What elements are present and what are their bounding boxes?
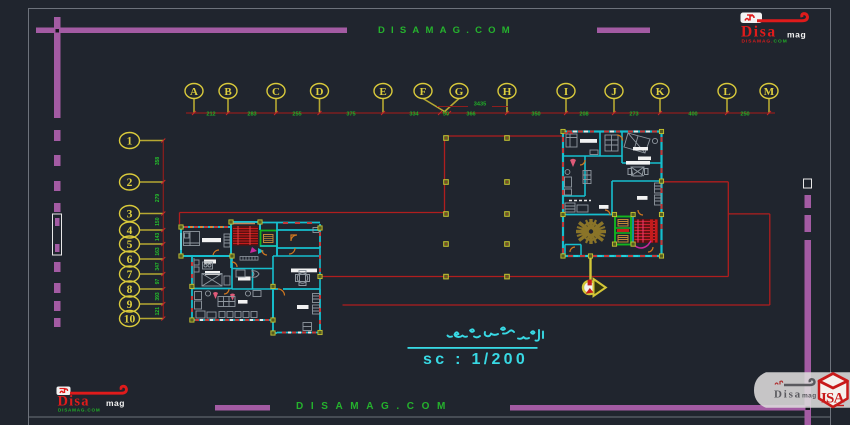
svg-text:400: 400 <box>688 112 697 118</box>
svg-text:A: A <box>190 86 198 98</box>
svg-text:DISAMAG.COM: DISAMAG.COM <box>378 25 516 36</box>
svg-text:8: 8 <box>127 284 133 296</box>
svg-text:150: 150 <box>155 217 161 226</box>
svg-text:B: B <box>224 86 232 98</box>
svg-text:mag: mag <box>106 398 125 408</box>
svg-text:J: J <box>611 86 617 98</box>
svg-text:I: I <box>564 86 568 98</box>
svg-text:358: 358 <box>155 157 161 166</box>
svg-text:375: 375 <box>346 112 355 118</box>
svg-text:208: 208 <box>579 112 588 118</box>
svg-text:250: 250 <box>740 112 749 118</box>
svg-text:347: 347 <box>155 262 161 271</box>
svg-text:50: 50 <box>443 112 449 118</box>
svg-text:D: D <box>316 86 324 98</box>
svg-text:279: 279 <box>155 194 161 203</box>
svg-text:283: 283 <box>247 112 256 118</box>
svg-text:DISAMAG.COM: DISAMAG.COM <box>742 39 788 45</box>
svg-text:163: 163 <box>155 247 161 256</box>
svg-text:F: F <box>420 86 427 98</box>
svg-text:Disa: Disa <box>774 389 802 401</box>
svg-text:1: 1 <box>127 136 133 148</box>
svg-text:7: 7 <box>127 269 133 281</box>
svg-text:366: 366 <box>466 112 475 118</box>
svg-text:mag: mag <box>802 393 817 400</box>
svg-text:sc : 1/200: sc : 1/200 <box>423 351 528 368</box>
svg-text:6: 6 <box>127 254 133 266</box>
svg-text:3435: 3435 <box>474 102 486 108</box>
svg-text:M: M <box>764 86 775 98</box>
svg-text:G: G <box>455 86 464 98</box>
svg-text:3: 3 <box>127 209 133 221</box>
svg-text:K: K <box>656 86 665 98</box>
svg-text:212: 212 <box>206 112 215 118</box>
svg-text:97: 97 <box>155 279 161 285</box>
svg-text:DISAMAG.COM: DISAMAG.COM <box>296 401 453 412</box>
svg-text:143: 143 <box>155 233 161 242</box>
svg-text:334: 334 <box>409 112 419 118</box>
svg-text:DISAMAG.COM: DISAMAG.COM <box>58 408 101 413</box>
svg-text:273: 273 <box>629 112 638 118</box>
svg-text:ISA: ISA <box>821 391 845 407</box>
svg-text:350: 350 <box>531 112 540 118</box>
svg-text:Disa: Disa <box>741 24 777 41</box>
svg-text:C: C <box>272 86 280 98</box>
svg-text:L: L <box>723 86 730 98</box>
svg-text:5: 5 <box>127 239 133 251</box>
svg-text:mag: mag <box>787 30 806 40</box>
svg-text:E: E <box>379 86 386 98</box>
svg-text:255: 255 <box>292 112 301 118</box>
svg-text:9: 9 <box>127 299 133 311</box>
svg-text:H: H <box>503 86 512 98</box>
svg-text:121: 121 <box>155 307 161 316</box>
svg-text:2: 2 <box>127 177 133 189</box>
svg-text:393: 393 <box>155 292 161 301</box>
svg-text:4: 4 <box>127 225 133 237</box>
svg-text:10: 10 <box>124 314 136 326</box>
